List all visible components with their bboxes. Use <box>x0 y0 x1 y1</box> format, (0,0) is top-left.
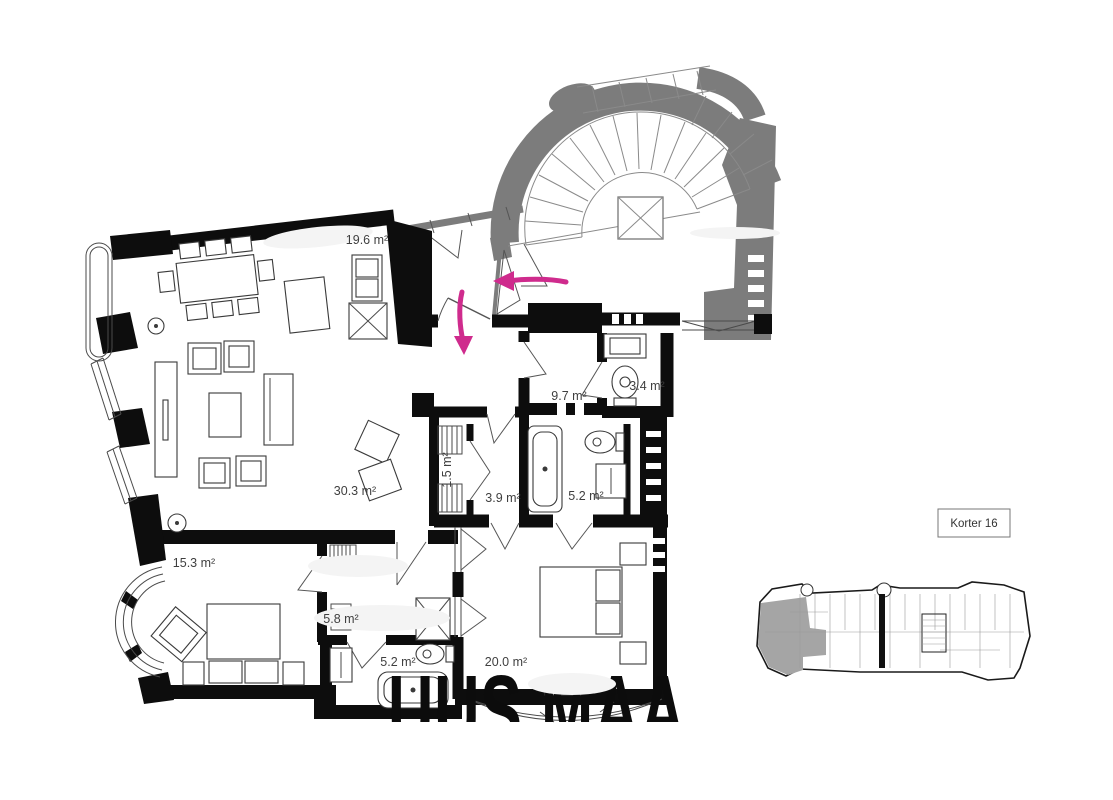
room-label-closet: 1.5 m² <box>440 452 454 487</box>
apartment-label-box: Korter 16 <box>938 509 1010 537</box>
master-bed <box>540 543 646 664</box>
entry-door <box>438 298 490 321</box>
floor-plan-drawing: UUS MAA 19.6 m² 9.7 m² 3.4 m² 30.3 m² 1.… <box>0 0 1113 800</box>
armchair <box>151 607 206 662</box>
room-label-living: 30.3 m² <box>334 484 376 498</box>
floor-plan-page: UUS MAA 19.6 m² 9.7 m² 3.4 m² 30.3 m² 1.… <box>0 0 1113 800</box>
wc-fixtures <box>604 334 646 406</box>
entrance-arrow-left <box>493 271 566 291</box>
small-bedroom-bed <box>183 604 304 685</box>
room-label-bedroom-small: 15.3 m² <box>173 556 215 570</box>
room-label-back-hall: 5.8 m² <box>323 612 358 626</box>
living-room-seating <box>155 341 401 501</box>
room-label-inner-hall: 3.9 m² <box>485 491 520 505</box>
apartment-label: Korter 16 <box>950 518 997 530</box>
room-label-bathroom-bottom: 5.2 m² <box>380 655 415 669</box>
room-label-bedroom-master: 20.0 m² <box>485 655 527 669</box>
elevator-shaft <box>618 197 663 239</box>
kitchen-counter <box>349 255 387 339</box>
building-overview-minimap <box>757 582 1030 680</box>
cabinet <box>284 277 330 333</box>
minimap-shaft <box>879 594 885 668</box>
room-label-dining: 19.6 m² <box>346 233 388 247</box>
room-label-entrance-hall: 9.7 m² <box>551 389 586 403</box>
entrance-arrow-down <box>454 292 473 355</box>
room-label-wc: 3.4 m² <box>629 379 664 393</box>
minimap-turret <box>801 584 813 596</box>
watermark-text: UUS MAA <box>388 655 686 767</box>
room-label-bathroom-top: 5.2 m² <box>568 489 603 503</box>
